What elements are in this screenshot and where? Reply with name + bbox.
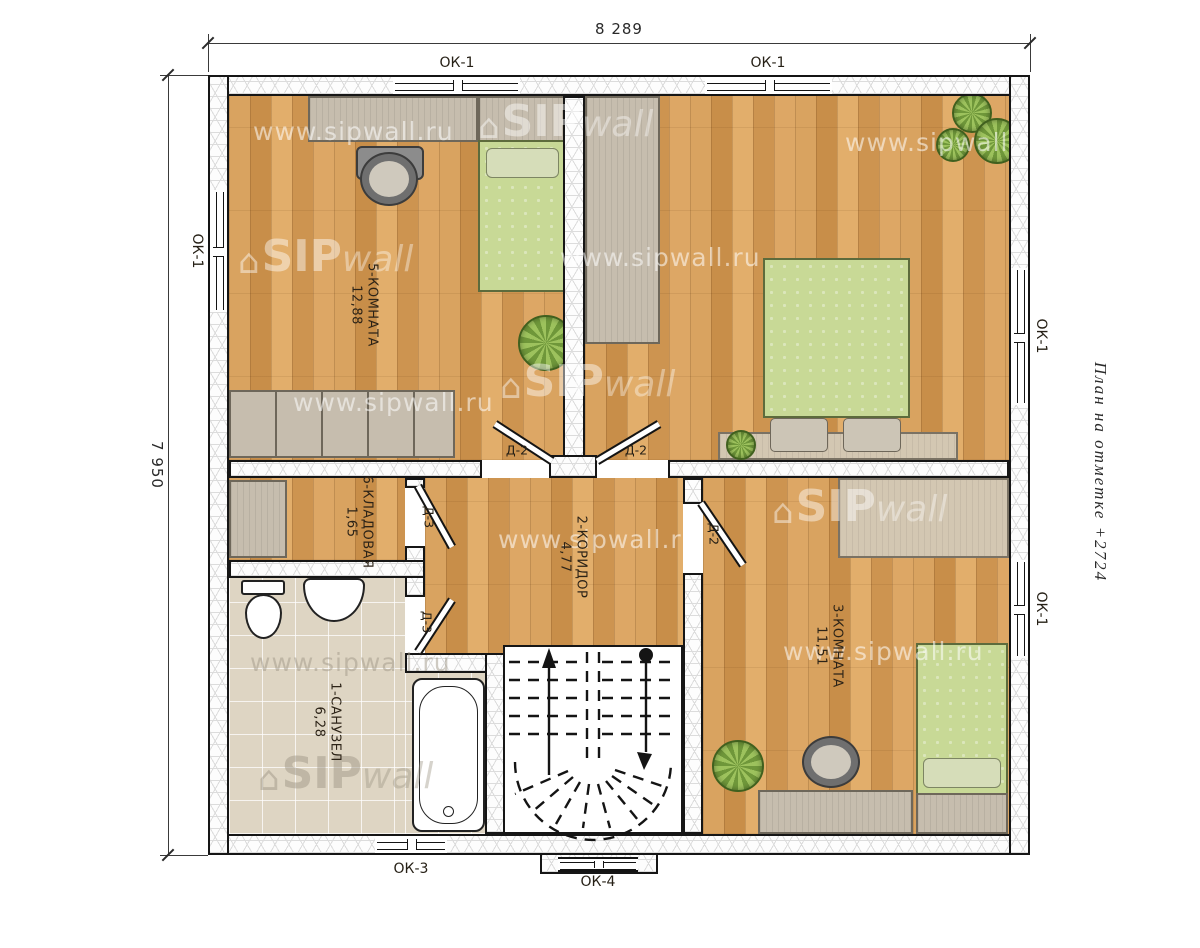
dimension-line-top — [208, 43, 1030, 44]
room-label-room5: 5-КОМНАТА 12,88 — [347, 263, 380, 347]
room-name: 1-САНУЗЕЛ — [326, 682, 342, 761]
dimension-line-left — [168, 75, 169, 855]
window-label-ok4: ОК-4 — [581, 874, 616, 890]
room-area: 12,88 — [347, 263, 363, 347]
plan-linework — [0, 0, 1200, 948]
door-label-d3: Д-3 — [422, 506, 437, 528]
door-label-d2: Д-2 — [625, 443, 647, 458]
room-label-room3: 3-КОМНАТА 11,51 — [812, 604, 845, 688]
door-label-d2: Д-2 — [506, 443, 528, 458]
floor-plan-canvas: www.sipwall.ru www.sipwall.ru www.sipwal… — [0, 0, 1200, 948]
room-label-bathroom: 1-САНУЗЕЛ 6,28 — [310, 682, 343, 761]
room-area: 4,77 — [556, 516, 572, 599]
window-label-ok1: ОК-1 — [1033, 319, 1049, 354]
dimension-height: 7 950 — [148, 441, 166, 489]
room-name: 3-КОМНАТА — [828, 604, 844, 688]
room-area: 6,28 — [310, 682, 326, 761]
sheet-title: План на отметке +2724 — [1090, 362, 1110, 582]
door-label-d3: Д-3 — [420, 611, 435, 633]
window-label-ok1: ОК-1 — [440, 55, 475, 71]
room-name: 6-КЛАДОВАЯ — [358, 475, 374, 568]
room-label-storage: 6-КЛАДОВАЯ 1,65 — [342, 475, 375, 568]
window-label-ok1: ОК-1 — [189, 234, 205, 269]
window-label-ok1: ОК-1 — [751, 55, 786, 71]
window-label-ok1: ОК-1 — [1033, 592, 1049, 627]
room-name: 5-КОМНАТА — [363, 263, 379, 347]
window-label-ok3: ОК-3 — [394, 861, 429, 877]
door-label-d2: Д-2 — [707, 523, 722, 545]
room-name: 2-КОРИДОР — [572, 516, 588, 599]
dimension-width: 8 289 — [208, 20, 1030, 38]
room-area: 11,51 — [812, 604, 828, 688]
room-label-corridor: 2-КОРИДОР 4,77 — [556, 516, 589, 599]
room-area: 1,65 — [342, 475, 358, 568]
staircase — [509, 648, 678, 840]
